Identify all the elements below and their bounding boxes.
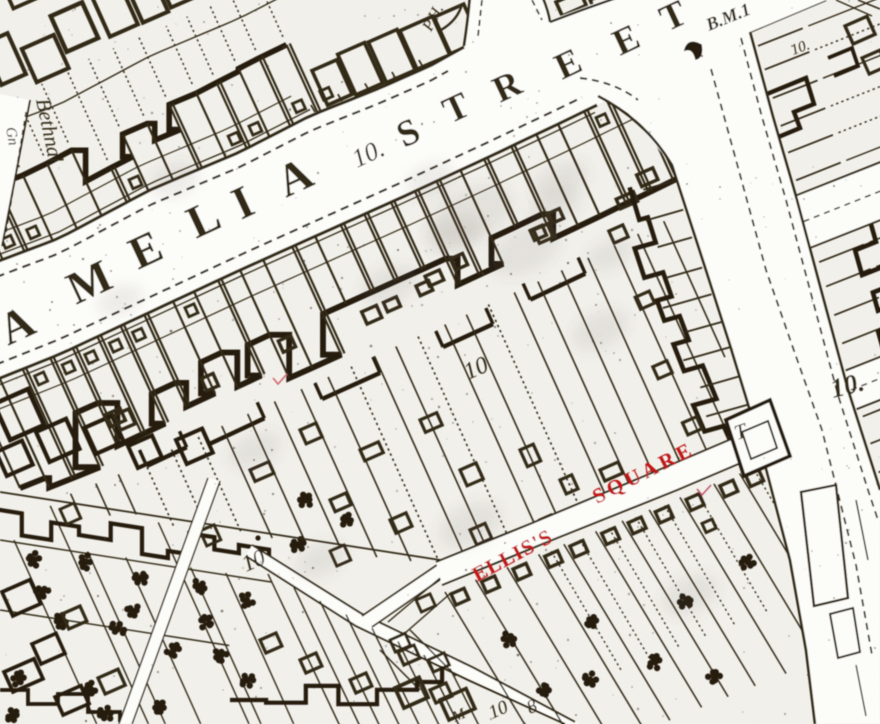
svg-text:Gn: Gn: [2, 126, 21, 147]
